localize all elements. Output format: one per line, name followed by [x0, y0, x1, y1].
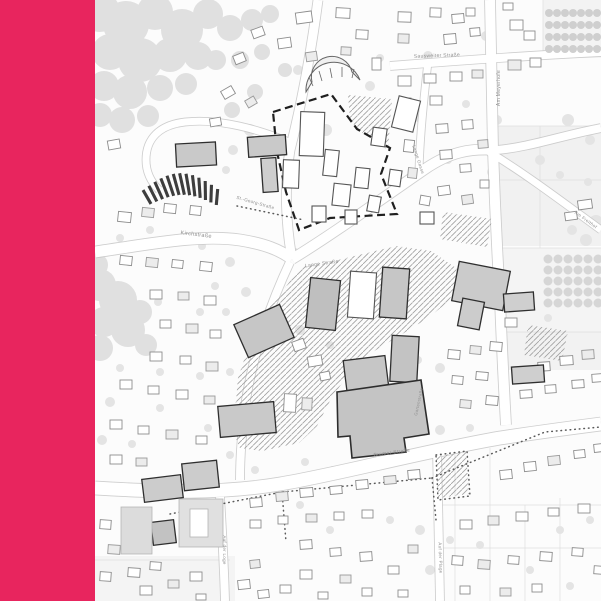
key-building [142, 475, 184, 503]
key-building [247, 135, 286, 158]
key-building [121, 507, 152, 554]
street-label-auf-der-loge: Auf der Loge [222, 535, 227, 565]
key-building [305, 278, 340, 331]
key-building [379, 267, 409, 319]
map-svg: Sausweiter StraßeAm MeyerhofeKirchstraße… [95, 0, 601, 601]
key-building [261, 158, 278, 193]
site-plan-map[interactable]: Sausweiter StraßeAm MeyerhofeKirchstraße… [95, 0, 601, 601]
hall-roof-opening [190, 509, 208, 537]
key-building [175, 142, 216, 167]
accent-sidebar [0, 0, 95, 601]
key-building [151, 520, 177, 546]
key-building [218, 402, 276, 438]
key-building [458, 298, 485, 330]
key-building [503, 292, 534, 312]
screenshot-root: Sausweiter StraßeAm MeyerhofeKirchstraße… [0, 0, 601, 601]
key-building [511, 365, 544, 384]
street-label-am-meyerhofe: Am Meyerhofe [496, 70, 502, 106]
key-building [182, 460, 220, 491]
key-building [390, 335, 419, 382]
